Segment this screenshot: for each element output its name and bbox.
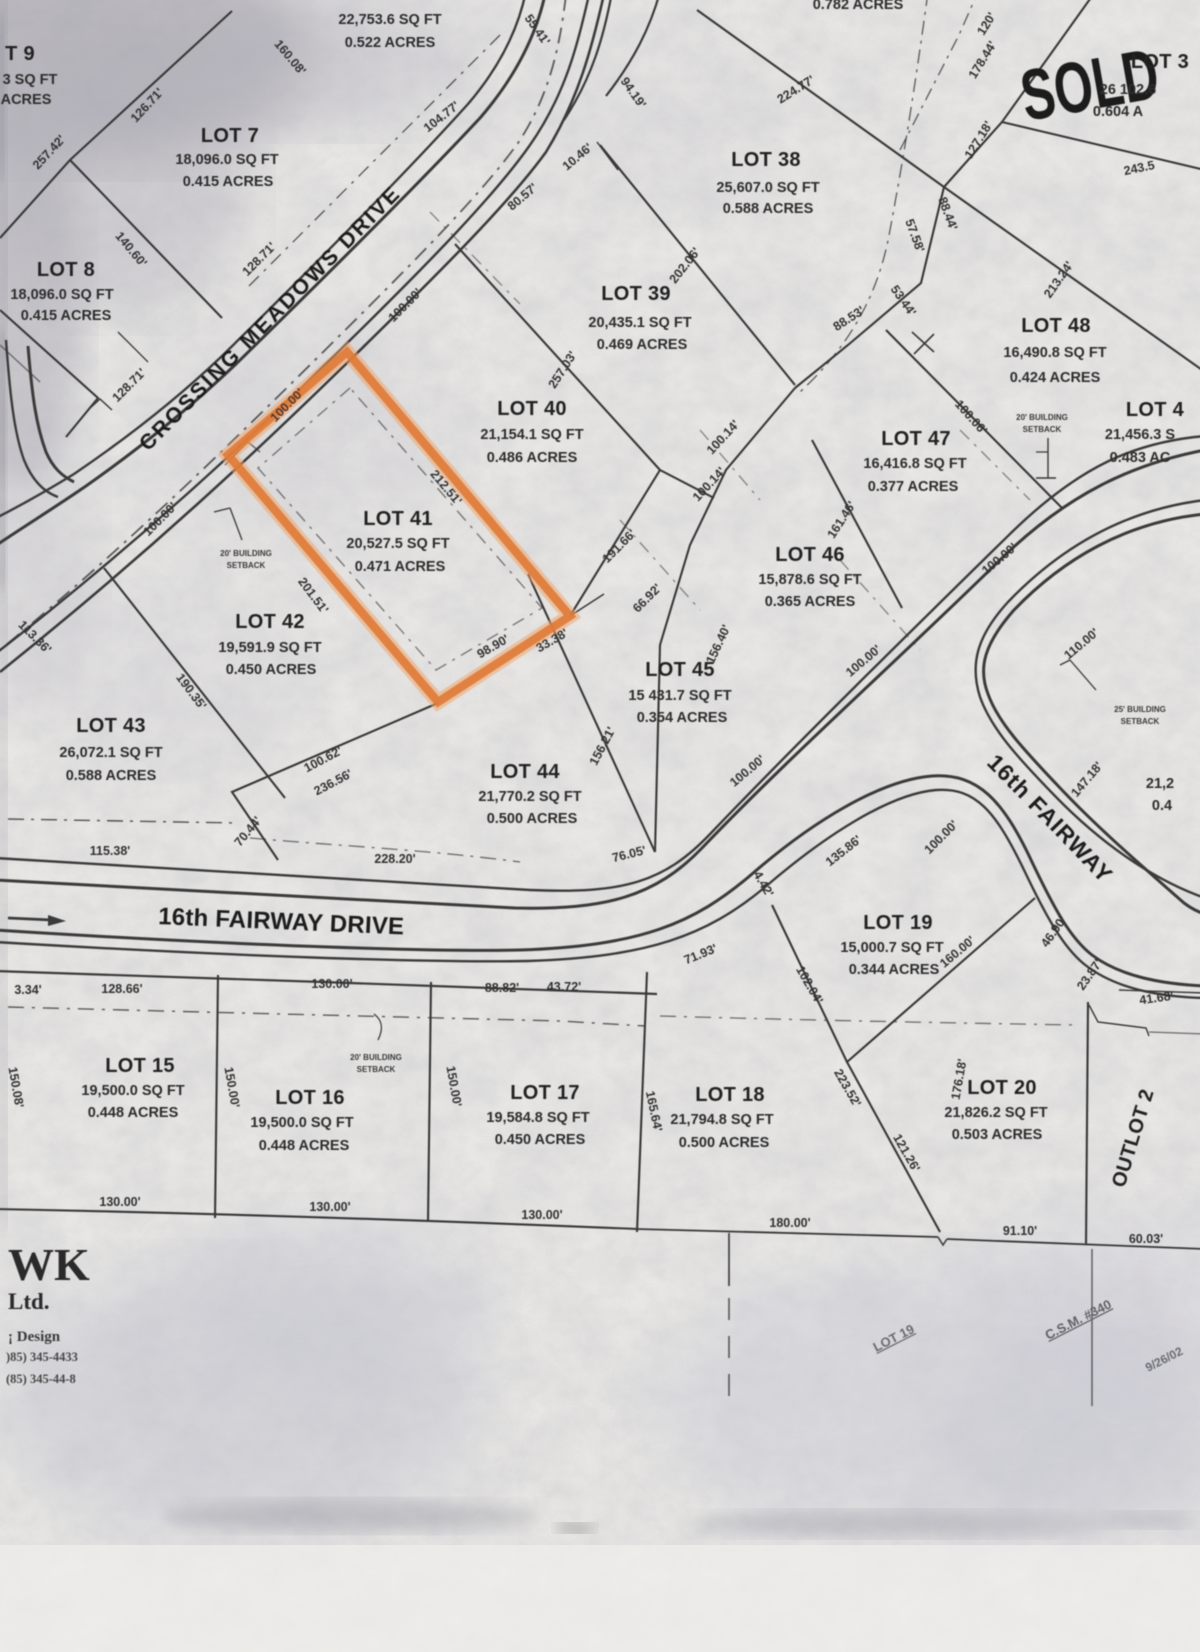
svg-text:18,096.0 SQ FT: 18,096.0 SQ FT: [10, 287, 113, 303]
svg-text:3 SQ FT: 3 SQ FT: [3, 72, 58, 88]
svg-text:0.483 AC: 0.483 AC: [1110, 450, 1171, 466]
svg-text:0.448 ACRES: 0.448 ACRES: [88, 1105, 179, 1121]
svg-text:21,794.8 SQ FT: 21,794.8 SQ FT: [670, 1112, 773, 1128]
svg-text:0.486 ACRES: 0.486 ACRES: [487, 450, 578, 466]
svg-text:LOT 3: LOT 3: [1131, 51, 1189, 73]
svg-text:26,072.1 SQ FT: 26,072.1 SQ FT: [59, 745, 162, 761]
svg-text:180.00': 180.00': [769, 1216, 810, 1230]
svg-text:22,753.6 SQ FT: 22,753.6 SQ FT: [338, 12, 441, 28]
svg-text:LOT 45: LOT 45: [645, 659, 715, 681]
svg-text:LOT 15: LOT 15: [105, 1055, 175, 1077]
svg-text:26 102.6: 26 102.6: [1100, 82, 1156, 98]
svg-text:LOT 43: LOT 43: [76, 715, 146, 737]
svg-text:0.469 ACRES: 0.469 ACRES: [597, 337, 688, 353]
svg-text:0.450 ACRES: 0.450 ACRES: [226, 662, 317, 678]
svg-text:LOT 44: LOT 44: [490, 761, 560, 783]
svg-text:43.72': 43.72': [547, 980, 581, 994]
svg-text:0.500 ACRES: 0.500 ACRES: [679, 1135, 770, 1151]
svg-text:0.377 ACRES: 0.377 ACRES: [868, 479, 959, 495]
svg-text:LOT 42: LOT 42: [235, 611, 305, 633]
svg-text:0.4: 0.4: [1152, 798, 1172, 814]
svg-text:25' BUILDING: 25' BUILDING: [1114, 705, 1166, 714]
svg-text:130.00': 130.00': [521, 1208, 562, 1222]
svg-text:91.10': 91.10': [1003, 1224, 1037, 1238]
svg-text:0.365 ACRES: 0.365 ACRES: [765, 594, 856, 610]
svg-text:15 431.7 SQ FT: 15 431.7 SQ FT: [628, 688, 731, 704]
svg-text:LOT 16: LOT 16: [275, 1087, 345, 1109]
svg-text:ACRES: ACRES: [1, 92, 52, 108]
svg-text:0.503 ACRES: 0.503 ACRES: [952, 1127, 1043, 1143]
svg-text:19,584.8 SQ FT: 19,584.8 SQ FT: [486, 1110, 589, 1126]
svg-text:0.604 A: 0.604 A: [1093, 104, 1144, 120]
svg-text:88.82': 88.82': [485, 981, 519, 995]
svg-text:SETBACK: SETBACK: [1023, 425, 1062, 434]
svg-text:20,527.5 SQ FT: 20,527.5 SQ FT: [346, 536, 449, 552]
svg-text:130.00': 130.00': [309, 1200, 350, 1214]
svg-text:LOT 17: LOT 17: [510, 1082, 580, 1104]
svg-text:115.38': 115.38': [90, 844, 131, 858]
svg-text:228.20': 228.20': [374, 852, 415, 866]
svg-text:LOT 18: LOT 18: [695, 1084, 765, 1106]
svg-text:21,456.3 S: 21,456.3 S: [1105, 427, 1175, 443]
svg-text:19,500.0 SQ FT: 19,500.0 SQ FT: [81, 1083, 184, 1099]
svg-text:0.782 ACRES: 0.782 ACRES: [813, 0, 904, 13]
svg-text:21,154.1 SQ FT: 21,154.1 SQ FT: [480, 427, 583, 443]
svg-text:LOT 46: LOT 46: [775, 544, 845, 566]
svg-text:16,490.8 SQ FT: 16,490.8 SQ FT: [1003, 345, 1106, 361]
svg-text:0.415 ACRES: 0.415 ACRES: [183, 174, 274, 190]
svg-text:60.03': 60.03': [1129, 1232, 1163, 1246]
svg-text:LOT 8: LOT 8: [37, 259, 95, 281]
svg-text:0.500 ACRES: 0.500 ACRES: [487, 811, 578, 827]
svg-text:21,2: 21,2: [1146, 776, 1174, 792]
svg-text:0.448 ACRES: 0.448 ACRES: [259, 1138, 350, 1154]
svg-text:0.522 ACRES: 0.522 ACRES: [345, 35, 436, 51]
svg-text:20' BUILDING: 20' BUILDING: [1016, 413, 1068, 422]
svg-text:LOT 20: LOT 20: [967, 1077, 1037, 1099]
svg-text:0.354 ACRES: 0.354 ACRES: [637, 710, 728, 726]
svg-text:0.424 ACRES: 0.424 ACRES: [1010, 370, 1101, 386]
svg-text:0.344 ACRES: 0.344 ACRES: [849, 962, 940, 978]
svg-text:LOT 41: LOT 41: [363, 508, 433, 530]
svg-text:18,096.0 SQ FT: 18,096.0 SQ FT: [175, 152, 278, 168]
svg-text:15,000.7 SQ FT: 15,000.7 SQ FT: [840, 940, 943, 956]
svg-text:19,591.9 SQ FT: 19,591.9 SQ FT: [218, 640, 321, 656]
svg-text:0.450 ACRES: 0.450 ACRES: [495, 1132, 586, 1148]
svg-text:SETBACK: SETBACK: [357, 1065, 396, 1074]
svg-text:LOT 48: LOT 48: [1021, 315, 1091, 337]
svg-text:0.471 ACRES: 0.471 ACRES: [355, 559, 446, 575]
svg-text:)85) 345-4433: )85) 345-4433: [6, 1350, 78, 1364]
svg-text:T 9: T 9: [5, 43, 35, 65]
svg-text:SETBACK: SETBACK: [1121, 717, 1160, 726]
svg-text:LOT 47: LOT 47: [881, 428, 951, 450]
svg-text:130.00': 130.00': [311, 977, 352, 991]
svg-text:21,770.2 SQ FT: 21,770.2 SQ FT: [478, 789, 581, 805]
svg-text:0.588 ACRES: 0.588 ACRES: [66, 768, 157, 784]
svg-text:Ltd.: Ltd.: [8, 1289, 50, 1314]
svg-text:SETBACK: SETBACK: [227, 561, 266, 570]
svg-text:0.588 ACRES: 0.588 ACRES: [723, 201, 814, 217]
svg-text:20' BUILDING: 20' BUILDING: [220, 549, 272, 558]
svg-text:LOT 19: LOT 19: [863, 912, 933, 934]
svg-text:LOT 4: LOT 4: [1126, 399, 1185, 421]
svg-text:¡ Design: ¡ Design: [8, 1329, 61, 1345]
svg-text:16,416.8 SQ FT: 16,416.8 SQ FT: [863, 456, 966, 472]
svg-text:25,607.0 SQ FT: 25,607.0 SQ FT: [716, 180, 819, 196]
svg-text:20,435.1 SQ FT: 20,435.1 SQ FT: [588, 315, 691, 331]
svg-text:LOT 39: LOT 39: [601, 283, 671, 305]
svg-text:0.415 ACRES: 0.415 ACRES: [21, 308, 112, 324]
svg-text:LOT 40: LOT 40: [497, 398, 567, 420]
svg-text:3.34': 3.34': [14, 983, 41, 997]
svg-text:15,878.6 SQ FT: 15,878.6 SQ FT: [758, 572, 861, 588]
svg-text:LOT 38: LOT 38: [731, 149, 801, 171]
svg-text:19,500.0 SQ FT: 19,500.0 SQ FT: [250, 1115, 353, 1131]
svg-text:21,826.2 SQ FT: 21,826.2 SQ FT: [944, 1105, 1047, 1121]
svg-text:WK: WK: [8, 1239, 90, 1290]
svg-text:LOT 7: LOT 7: [201, 125, 259, 147]
svg-text:128.66': 128.66': [101, 982, 142, 996]
svg-text:(85) 345-44-8: (85) 345-44-8: [6, 1372, 76, 1386]
svg-text:20' BUILDING: 20' BUILDING: [350, 1053, 402, 1062]
svg-text:130.00': 130.00': [99, 1195, 140, 1209]
